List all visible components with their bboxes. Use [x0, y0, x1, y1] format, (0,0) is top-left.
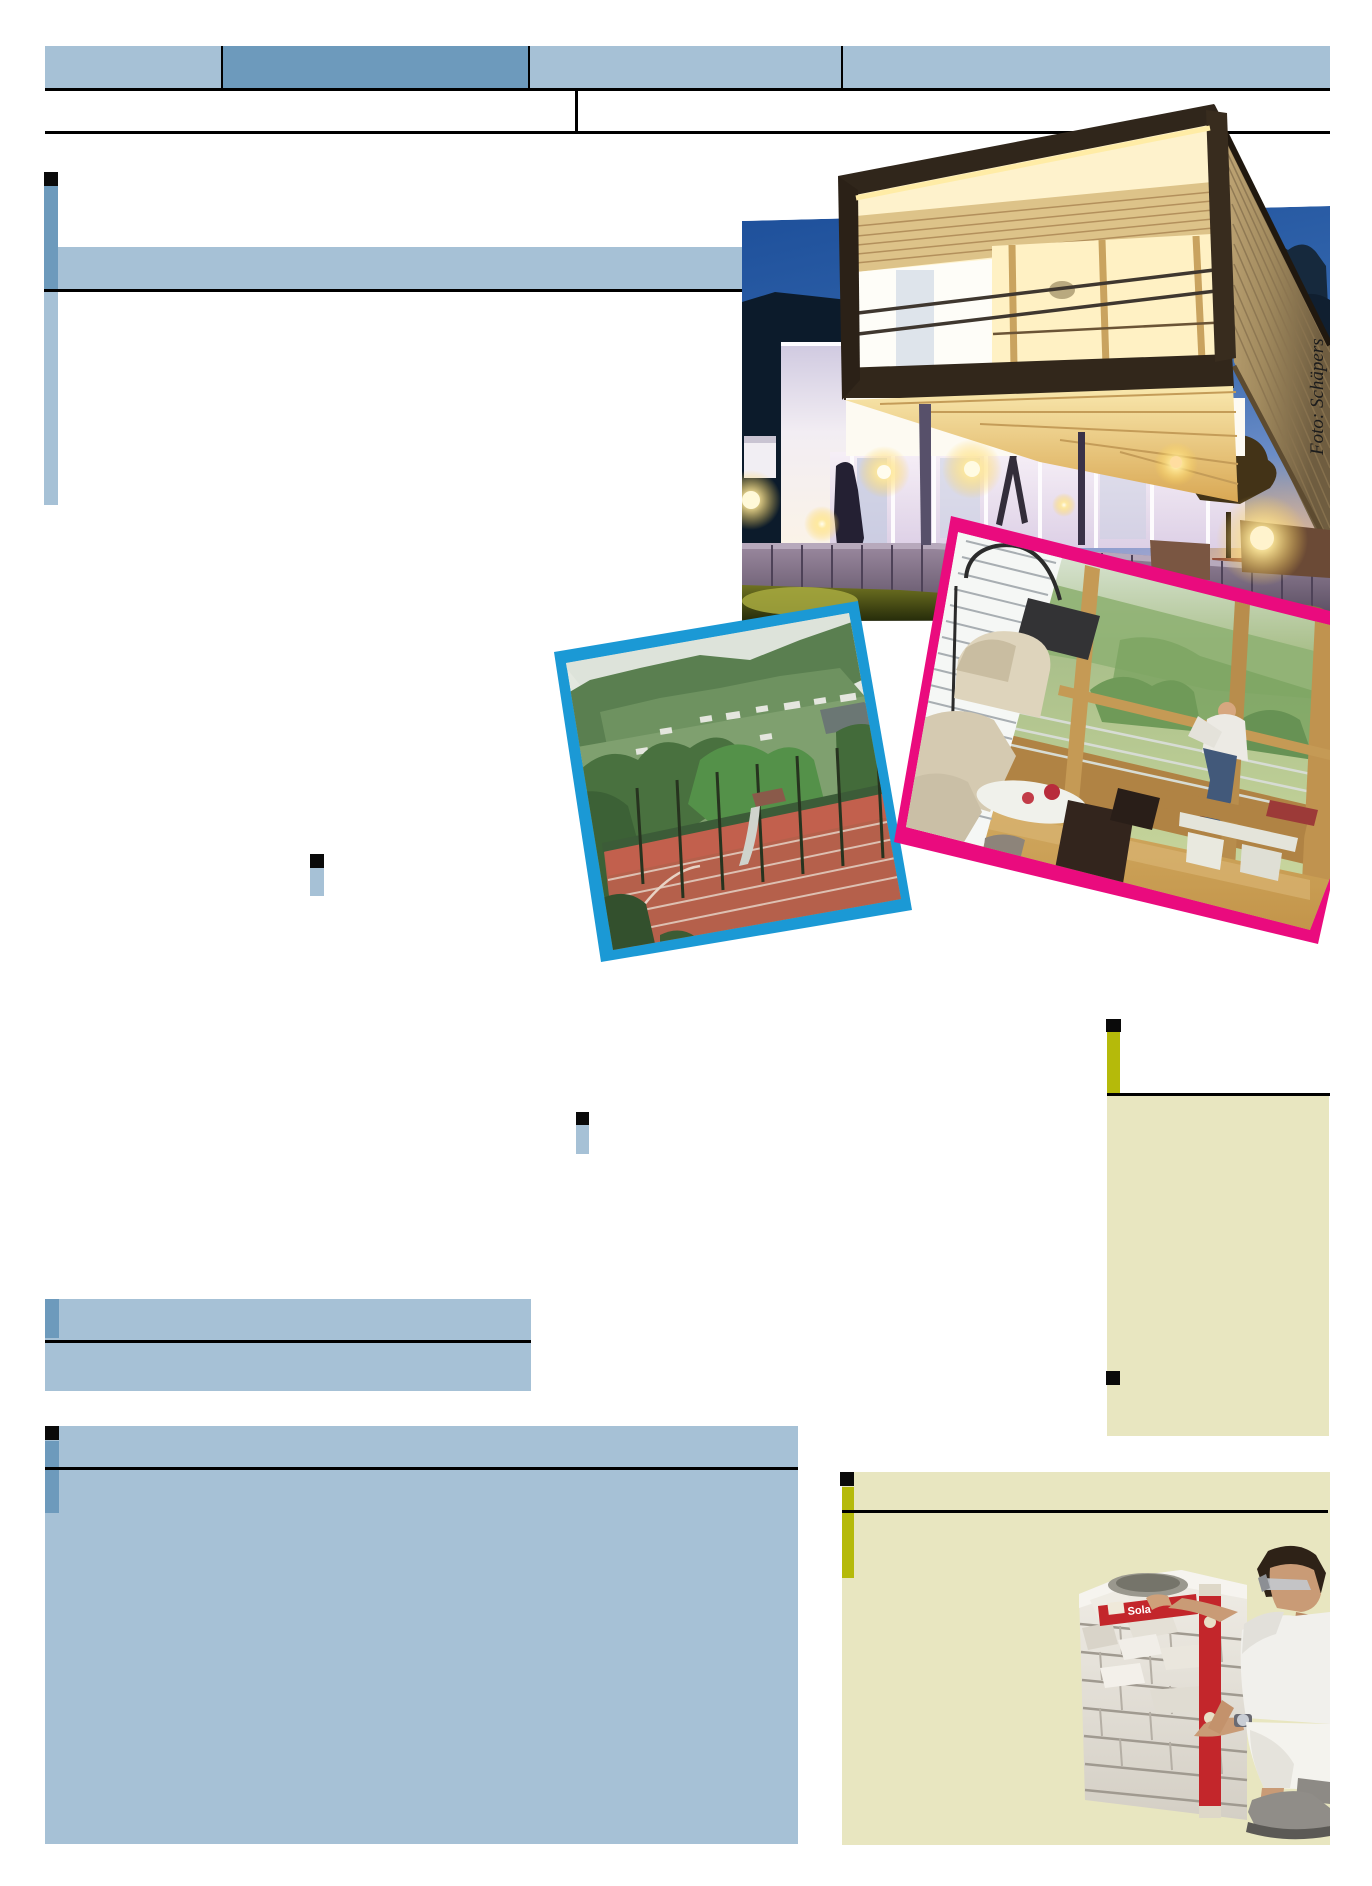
svg-text:Foto: Schäpers: Foto: Schäpers [1307, 338, 1328, 456]
svg-text:Sola: Sola [1127, 1604, 1152, 1618]
